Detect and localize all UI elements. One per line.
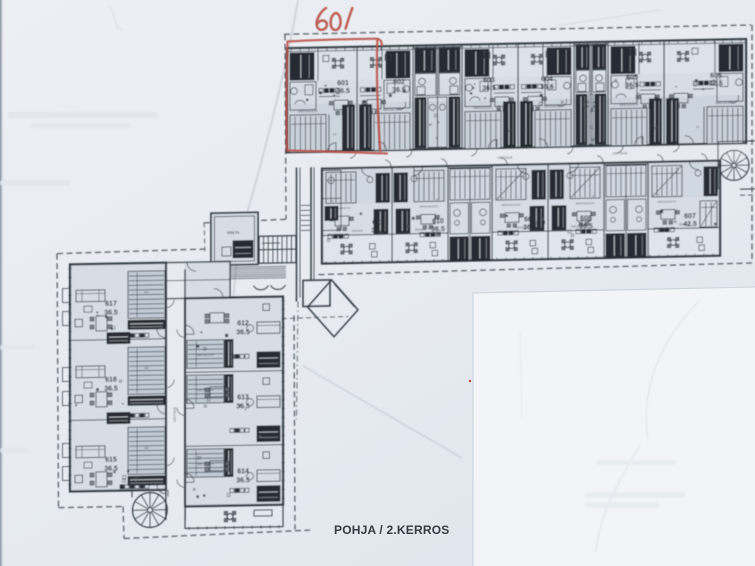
svg-text:36.5: 36.5 [579, 223, 593, 230]
svg-text:36.5: 36.5 [236, 403, 250, 410]
svg-text:ET: ET [333, 132, 337, 136]
svg-text:KÄYTÄVÄ: KÄYTÄVÄ [498, 156, 514, 160]
svg-text:610: 610 [432, 218, 444, 225]
svg-text:MAKUUALKOVI: MAKUUALKOVI [544, 104, 563, 108]
svg-text:601: 601 [337, 80, 349, 87]
svg-text:604: 604 [541, 76, 553, 83]
svg-text:MAKUUALKOVI: MAKUUALKOVI [383, 107, 402, 111]
svg-text:ET: ET [524, 128, 528, 132]
svg-text:MAKUUALKOVI: MAKUUALKOVI [620, 103, 639, 107]
svg-text:36.5: 36.5 [104, 466, 118, 473]
svg-text:KÄYTÄVÄ: KÄYTÄVÄ [613, 151, 629, 155]
svg-text:ET: ET [508, 129, 512, 133]
svg-text:36.5: 36.5 [104, 386, 118, 393]
svg-text:ET: ET [654, 126, 658, 130]
svg-text:36.5: 36.5 [371, 227, 385, 234]
svg-text:613: 613 [237, 394, 249, 401]
svg-text:609: 609 [524, 216, 536, 223]
svg-text:602: 602 [393, 79, 405, 86]
svg-text:36.5: 36.5 [336, 88, 350, 95]
svg-text:ET: ET [500, 196, 504, 200]
svg-text:36.5: 36.5 [236, 477, 250, 484]
svg-text:36.5: 36.5 [540, 84, 554, 91]
svg-text:608: 608 [580, 215, 592, 222]
svg-text:KÄYTÄVÄ: KÄYTÄVÄ [173, 406, 177, 422]
svg-text:MAKUUALKOVI: MAKUUALKOVI [420, 204, 439, 208]
svg-text:612: 612 [237, 320, 249, 327]
svg-text:36.5: 36.5 [431, 226, 445, 233]
svg-text:36.5: 36.5 [104, 310, 118, 317]
svg-text:36.5: 36.5 [236, 329, 250, 336]
svg-text:TERASSI: TERASSI [414, 227, 425, 231]
svg-text:607: 607 [684, 213, 696, 220]
svg-text:36.5: 36.5 [523, 224, 537, 231]
svg-text:603: 603 [483, 77, 495, 84]
svg-text:ET: ET [363, 132, 367, 136]
svg-text:616: 616 [105, 377, 117, 384]
svg-text:MAKUUALKOVI: MAKUUALKOVI [474, 106, 493, 110]
svg-text:ET: ET [592, 194, 596, 198]
svg-text:611: 611 [372, 219, 383, 226]
svg-text:ET: ET [696, 125, 700, 129]
svg-text:MAKUUALKOVI: MAKUUALKOVI [576, 201, 595, 205]
svg-text:ET: ET [330, 199, 334, 203]
svg-text:MAKUUALKOVI: MAKUUALKOVI [658, 199, 677, 203]
svg-text:36.5: 36.5 [392, 87, 406, 94]
svg-text:615: 615 [105, 457, 117, 464]
svg-text:POHJA / 2.KERROS: POHJA / 2.KERROS [334, 523, 449, 537]
svg-text:MAKUUALKOVI: MAKUUALKOVI [299, 109, 318, 113]
svg-text:ET: ET [656, 193, 660, 197]
svg-text:TERASSI: TERASSI [351, 229, 362, 233]
svg-text:606: 606 [710, 73, 722, 80]
svg-text:MH: MH [144, 366, 148, 370]
svg-text:36.5: 36.5 [482, 85, 496, 92]
svg-text:36.5: 36.5 [625, 82, 639, 89]
svg-text:42.5: 42.5 [683, 221, 697, 228]
svg-text:ET: ET [436, 197, 440, 201]
svg-text:605: 605 [626, 74, 638, 81]
svg-text:42.5: 42.5 [709, 81, 723, 88]
svg-text:MAKUUALKOVI: MAKUUALKOVI [197, 354, 214, 357]
svg-text:VSS.Tk: VSS.Tk [227, 231, 239, 235]
svg-text:MH: MH [144, 290, 148, 294]
svg-text:617: 617 [105, 301, 117, 308]
svg-text:MAKUUALKOVI: MAKUUALKOVI [716, 101, 735, 105]
svg-text:MAKUUALKOVI: MAKUUALKOVI [502, 203, 521, 207]
svg-text:614: 614 [237, 468, 249, 475]
svg-text:MH: MH [144, 446, 148, 450]
